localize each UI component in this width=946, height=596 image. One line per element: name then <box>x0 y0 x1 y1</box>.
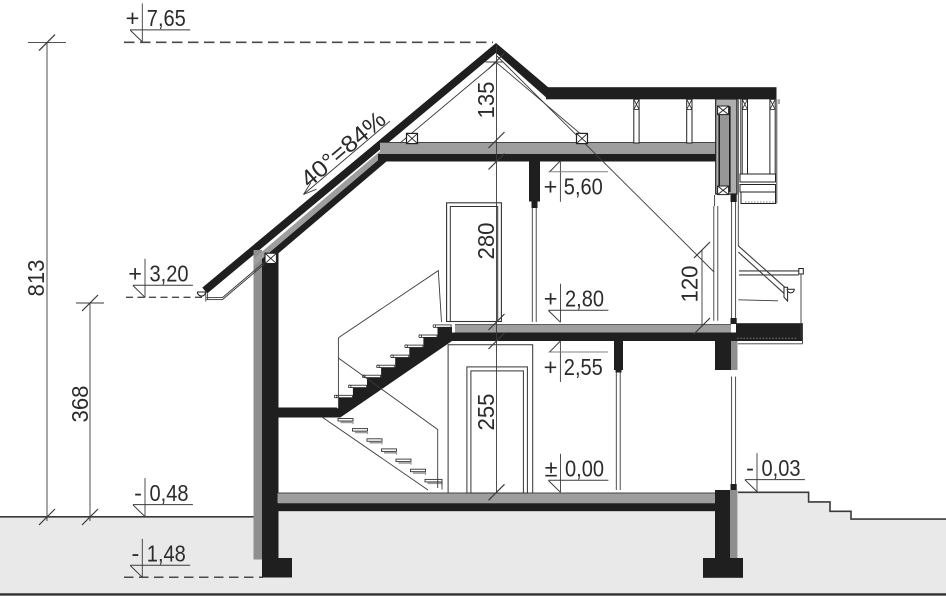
svg-text:-: - <box>746 455 754 481</box>
svg-text:0,00: 0,00 <box>565 456 604 482</box>
svg-text:+: + <box>128 261 142 287</box>
svg-text:255: 255 <box>473 394 499 431</box>
svg-text:+: + <box>544 286 558 312</box>
svg-text:1,48: 1,48 <box>147 541 186 567</box>
svg-text:+: + <box>544 174 558 200</box>
svg-text:120: 120 <box>677 266 703 303</box>
svg-text:0,03: 0,03 <box>762 455 801 481</box>
svg-text:±: ± <box>545 456 558 482</box>
svg-text:+: + <box>126 5 140 31</box>
svg-text:5,60: 5,60 <box>564 174 603 200</box>
svg-text:-: - <box>131 541 139 567</box>
svg-text:813: 813 <box>23 260 49 297</box>
svg-text:280: 280 <box>473 223 499 260</box>
svg-text:3,20: 3,20 <box>150 261 189 287</box>
svg-text:7,65: 7,65 <box>147 5 186 31</box>
svg-text:+: + <box>544 354 558 380</box>
svg-text:135: 135 <box>473 82 499 119</box>
svg-text:368: 368 <box>67 386 93 423</box>
svg-text:2,55: 2,55 <box>564 354 603 380</box>
svg-text:0,48: 0,48 <box>150 480 189 506</box>
svg-text:-: - <box>134 480 142 506</box>
svg-text:2,80: 2,80 <box>565 286 604 312</box>
